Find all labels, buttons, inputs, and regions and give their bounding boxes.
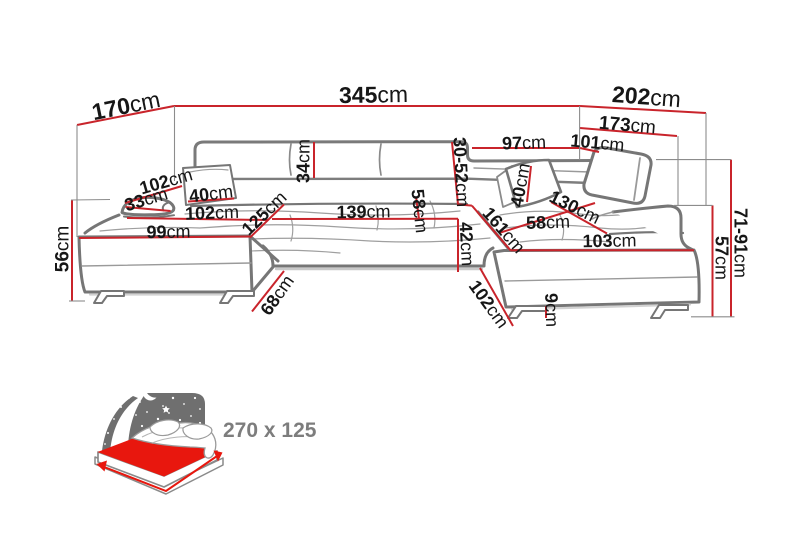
svg-text:125cm: 125cm [238,187,291,239]
svg-text:58cm: 58cm [526,212,571,234]
svg-text:270 x 125: 270 x 125 [223,419,317,442]
svg-text:57cm: 57cm [712,236,732,280]
svg-text:102cm: 102cm [185,202,240,224]
svg-text:56cm: 56cm [53,226,74,272]
svg-text:97cm: 97cm [502,132,547,154]
svg-text:170cm: 170cm [90,86,163,125]
svg-text:345cm: 345cm [339,81,408,108]
svg-text:103cm: 103cm [582,230,636,251]
svg-text:42cm: 42cm [456,222,478,267]
svg-text:202cm: 202cm [611,81,682,112]
svg-text:9cm: 9cm [541,293,562,328]
svg-text:71-91cm: 71-91cm [731,208,751,278]
svg-text:101cm: 101cm [570,130,626,155]
svg-text:139cm: 139cm [336,201,390,222]
svg-text:34cm: 34cm [293,139,313,183]
svg-text:58cm: 58cm [407,188,431,234]
svg-text:99cm: 99cm [146,221,190,242]
svg-text:30-52cm: 30-52cm [449,137,473,208]
